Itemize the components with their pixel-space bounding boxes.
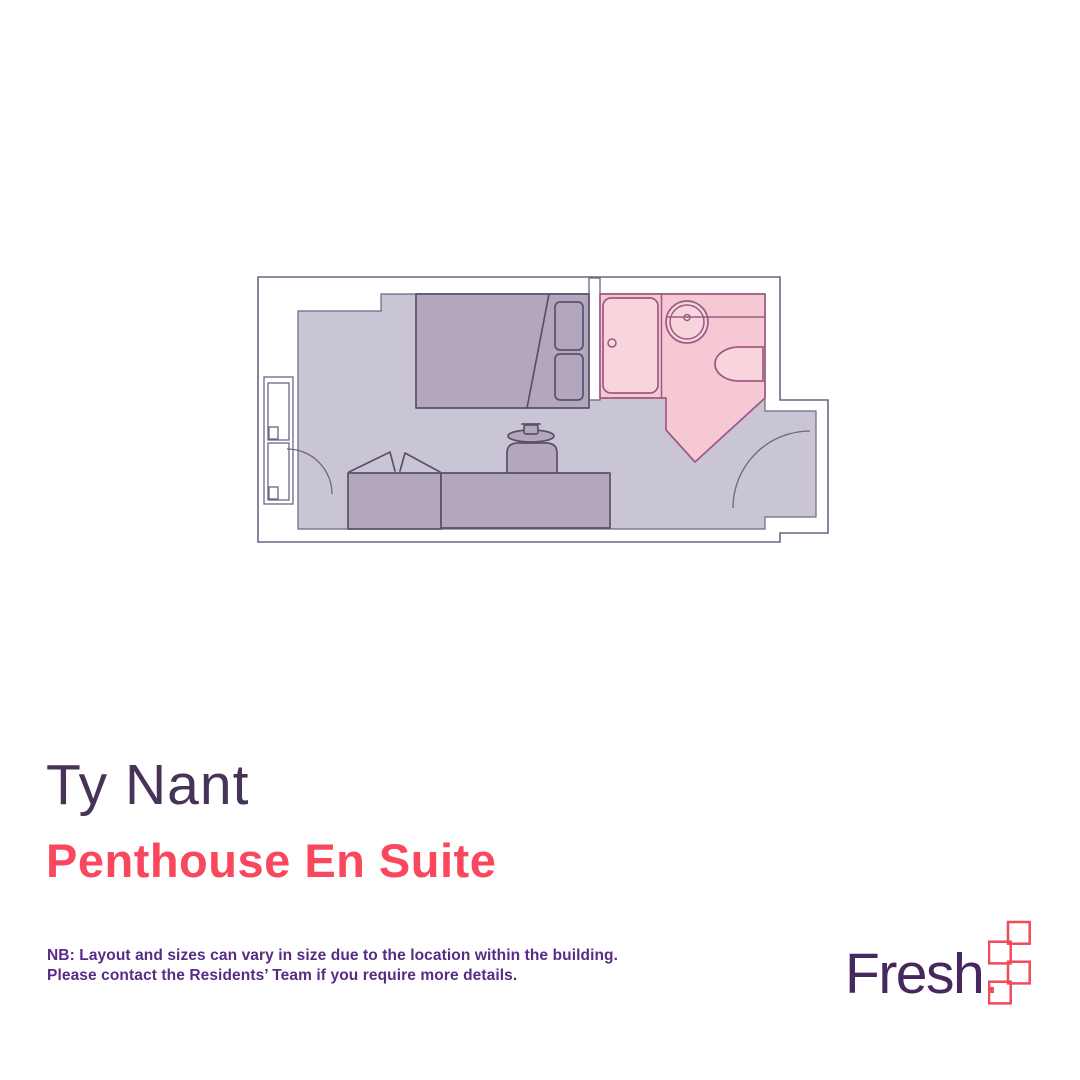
wardrobe-body xyxy=(348,473,441,529)
window-vent xyxy=(269,487,278,499)
bed xyxy=(416,294,589,408)
pillow xyxy=(555,354,583,400)
toilet xyxy=(715,347,763,381)
disclaimer-line-1: NB: Layout and sizes can vary in size du… xyxy=(47,946,618,966)
pillow xyxy=(555,302,583,350)
fresh-logo: Fresh. xyxy=(845,941,998,1007)
shower-tray xyxy=(603,298,658,393)
fresh-wordmark: Fresh xyxy=(845,942,983,1006)
chair-headrest xyxy=(524,425,538,434)
washbasin xyxy=(666,301,708,343)
window xyxy=(264,377,293,504)
building-title: Ty Nant xyxy=(46,752,249,818)
flyer-canvas: Ty Nant Penthouse En Suite NB: Layout an… xyxy=(0,0,1080,1080)
window-vent xyxy=(269,427,278,439)
disclaimer-line-2: Please contact the Residents’ Team if yo… xyxy=(47,966,618,986)
chair-seat xyxy=(507,443,557,473)
floor-plan xyxy=(0,0,1080,1080)
desk xyxy=(441,473,610,528)
fresh-logo-mark-icon xyxy=(988,919,1034,1007)
partition-wall xyxy=(589,278,600,400)
room-type-subtitle: Penthouse En Suite xyxy=(46,833,496,888)
disclaimer-note: NB: Layout and sizes can vary in size du… xyxy=(47,946,618,985)
